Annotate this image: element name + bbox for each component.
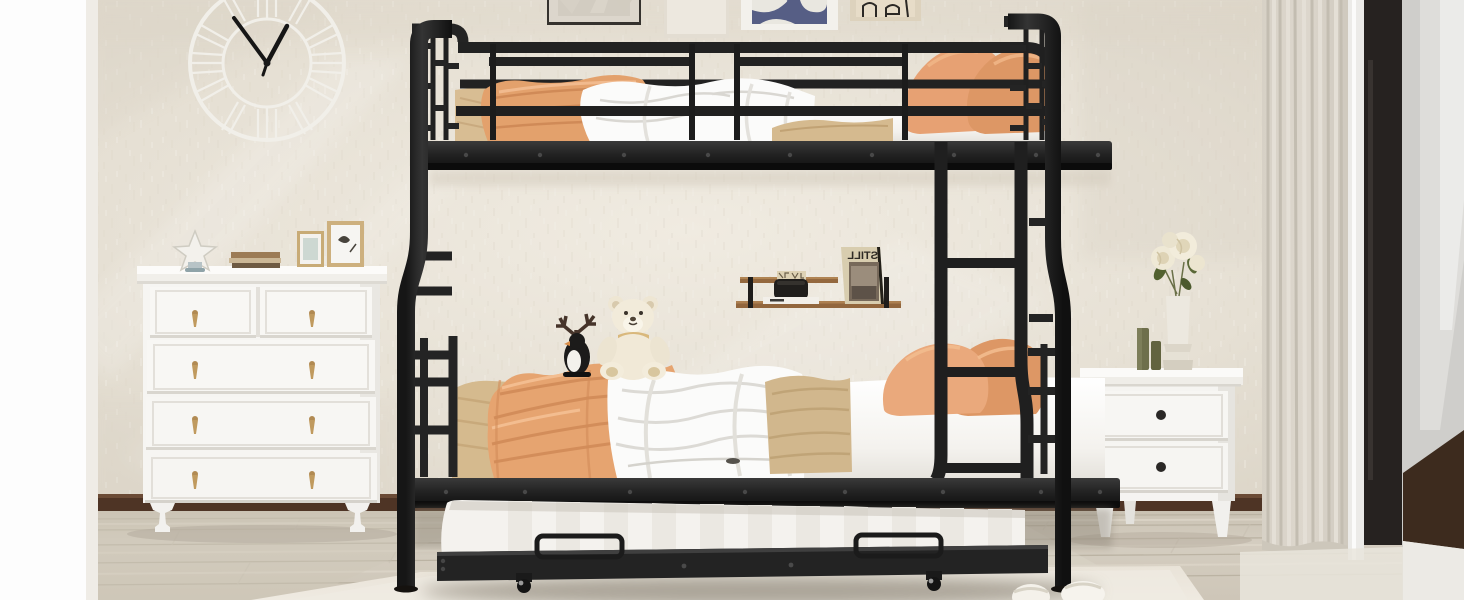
svg-text:STILL: STILL: [847, 250, 878, 262]
